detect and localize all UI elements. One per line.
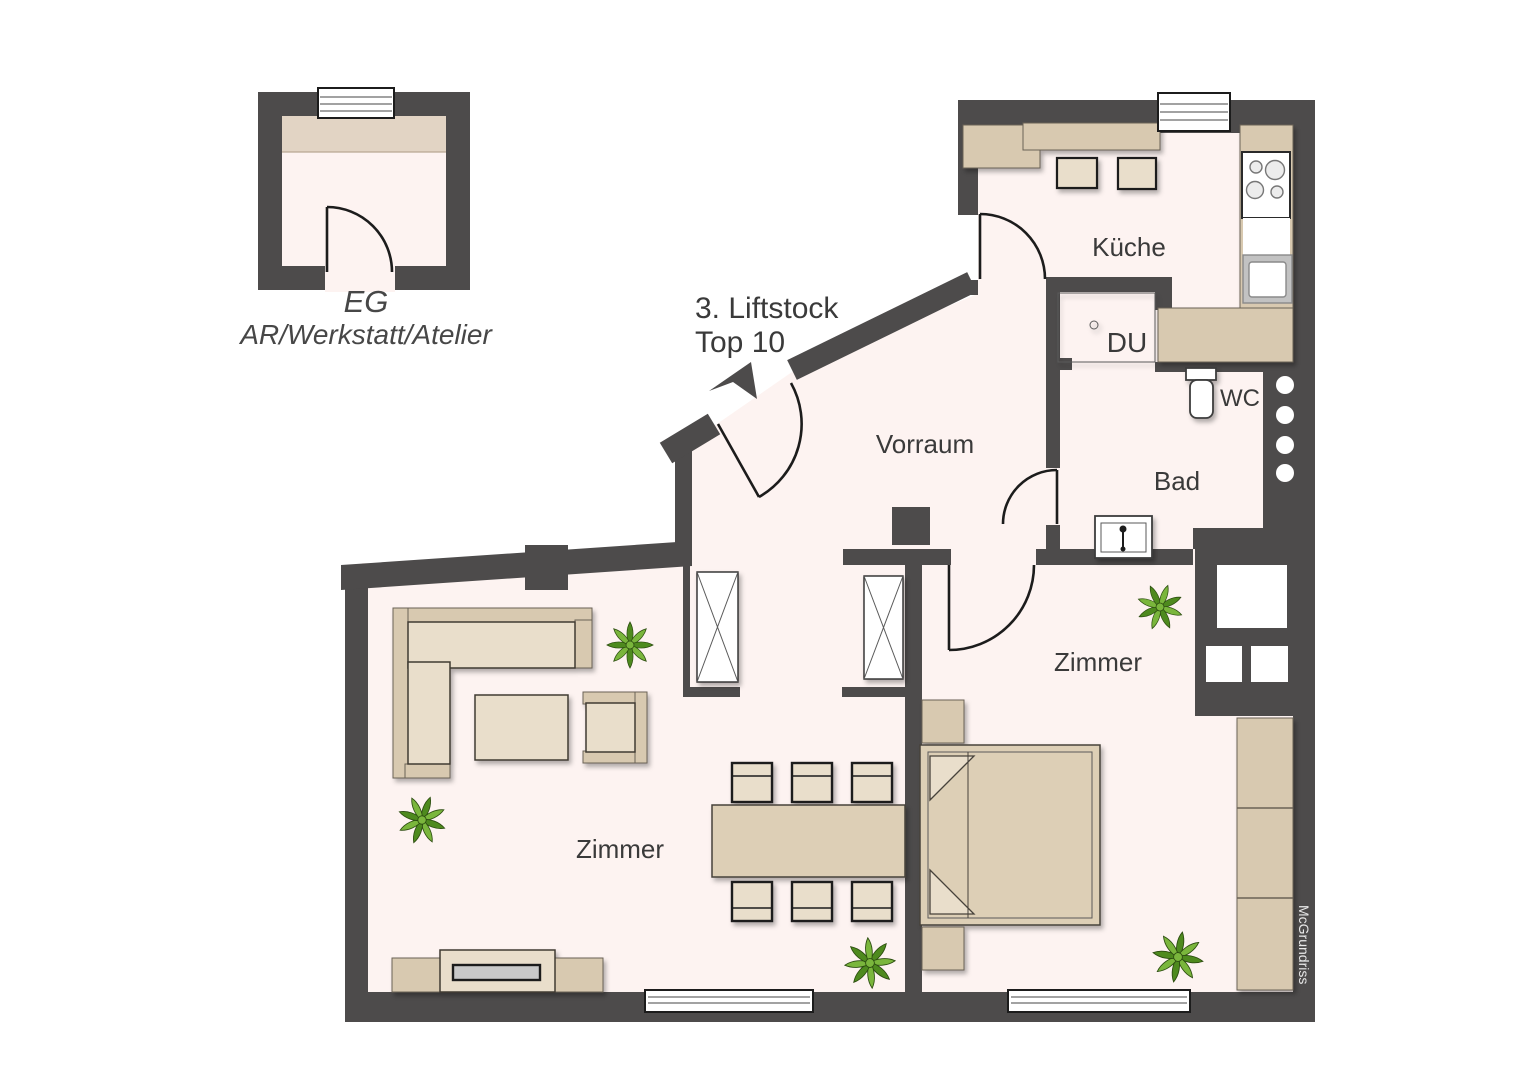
label-wc: WC [1220, 385, 1260, 412]
label-shower: DU [1107, 327, 1147, 358]
stove [1242, 152, 1290, 218]
inset-plan: EG AR/Werkstatt/Atelier [238, 88, 493, 350]
main-plan: 3. Liftstock Top 10 Vorraum Küche DU WC … [341, 93, 1315, 1022]
stool [1057, 158, 1097, 188]
dining-table [712, 805, 905, 877]
floorplan-svg: EG AR/Werkstatt/Atelier [0, 0, 1528, 1080]
nightstand-top [922, 700, 964, 743]
watermark: McGrundriss [1296, 905, 1312, 984]
inset-floor-label: EG [344, 284, 389, 319]
bed [920, 745, 1100, 925]
label-kitchen: Küche [1092, 232, 1166, 262]
label-living: Zimmer [576, 834, 664, 864]
entrance-annotation-line1: 3. Liftstock [695, 292, 839, 325]
inset-window [318, 88, 394, 118]
stool [1118, 158, 1156, 189]
kitchen-window [1158, 93, 1230, 131]
kitchen-bench [1023, 123, 1160, 150]
nightstand-bottom [922, 927, 964, 970]
entrance-annotation-line2: Top 10 [695, 326, 785, 359]
hall-pillar [892, 507, 930, 545]
wardrobe [1237, 718, 1293, 990]
tv [453, 965, 540, 980]
bedroom-window [1008, 990, 1190, 1012]
kitchen-counter-bottom [1158, 308, 1293, 362]
label-bedroom: Zimmer [1054, 647, 1142, 677]
inset-workbench [282, 116, 446, 152]
dining-set [712, 763, 905, 921]
bath-sink [1095, 516, 1152, 558]
floorplan-page: EG AR/Werkstatt/Atelier [0, 0, 1528, 1080]
inset-room-label: AR/Werkstatt/Atelier [238, 319, 493, 350]
kitchen-sink [1243, 255, 1292, 303]
coffee-table [475, 695, 568, 760]
label-bath: Bad [1154, 466, 1200, 496]
living-window [645, 990, 813, 1012]
kitchen-worktop [1243, 218, 1290, 255]
plant [607, 622, 653, 668]
entrance-arrow-icon [709, 362, 757, 399]
armchair [583, 692, 647, 763]
toilet [1186, 368, 1216, 418]
label-hall: Vorraum [876, 429, 974, 459]
